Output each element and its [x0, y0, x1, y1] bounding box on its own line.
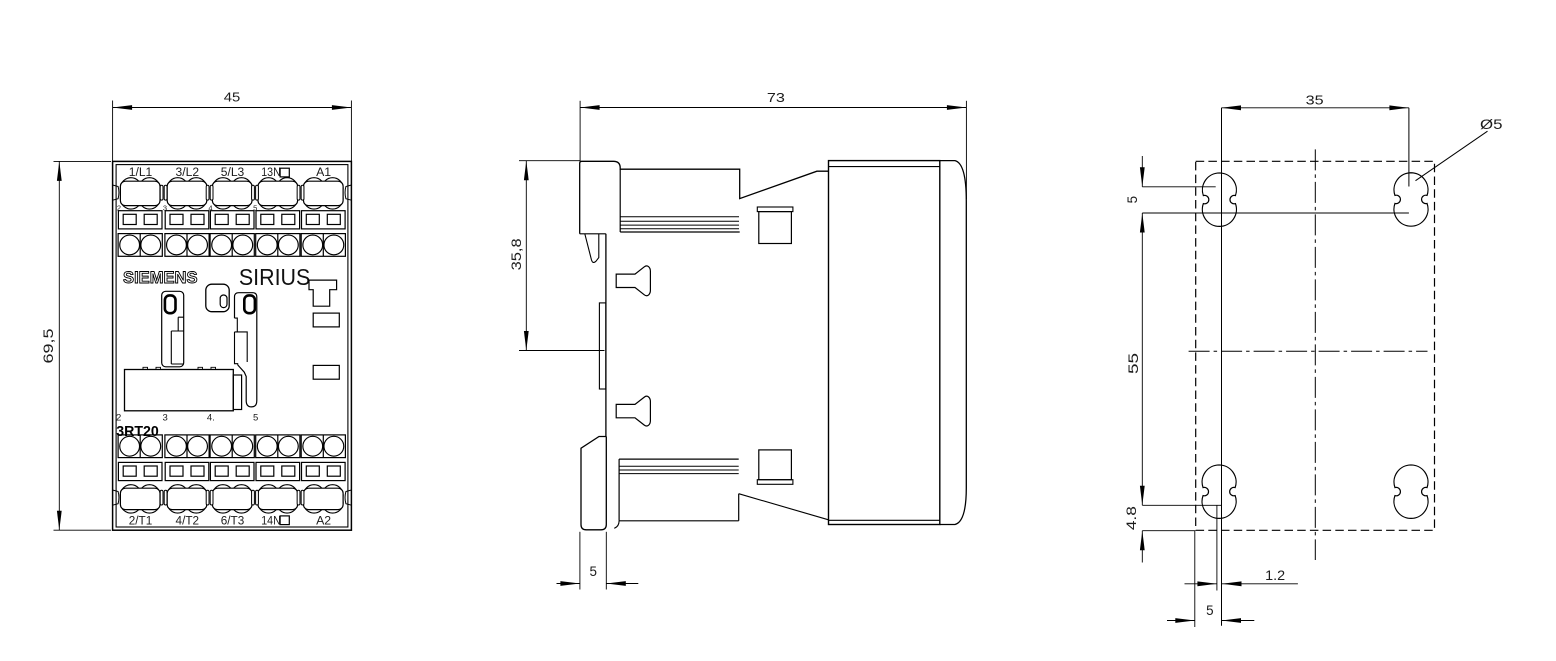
- svg-text:Ø5: Ø5: [1480, 117, 1503, 133]
- svg-text:6/T3: 6/T3: [221, 513, 245, 527]
- svg-text:13N: 13N: [261, 165, 281, 179]
- svg-text:2: 2: [117, 203, 121, 212]
- svg-text:5: 5: [589, 564, 596, 579]
- svg-text:4.8: 4.8: [1124, 506, 1139, 530]
- svg-text:35,8: 35,8: [509, 238, 524, 270]
- svg-text:55: 55: [1126, 353, 1141, 374]
- svg-text:5: 5: [1125, 196, 1140, 203]
- svg-text:A1: A1: [316, 165, 331, 179]
- svg-text:SIEMENS: SIEMENS: [123, 269, 198, 287]
- svg-text:5: 5: [253, 203, 257, 212]
- svg-text:5: 5: [253, 413, 258, 424]
- svg-text:2: 2: [116, 413, 121, 424]
- svg-text:SIRIUS: SIRIUS: [239, 264, 311, 290]
- svg-text:A2: A2: [316, 513, 331, 527]
- svg-text:3: 3: [163, 413, 168, 424]
- svg-text:3: 3: [163, 203, 167, 212]
- svg-text:2/T1: 2/T1: [129, 513, 153, 527]
- svg-text:3RT20: 3RT20: [116, 423, 159, 440]
- svg-text:35: 35: [1306, 93, 1324, 108]
- svg-text:5/L3: 5/L3: [221, 165, 245, 179]
- svg-text:1.2: 1.2: [1265, 568, 1285, 583]
- svg-text:69,5: 69,5: [41, 329, 56, 364]
- svg-text:4.: 4.: [207, 413, 215, 424]
- svg-text:73: 73: [767, 90, 785, 105]
- svg-text:1/L1: 1/L1: [129, 165, 153, 179]
- svg-text:4/T2: 4/T2: [176, 513, 200, 527]
- svg-text:45: 45: [224, 90, 241, 105]
- svg-text:5: 5: [1206, 603, 1213, 618]
- svg-text:3/L2: 3/L2: [176, 165, 200, 179]
- svg-text:14N: 14N: [261, 513, 281, 527]
- svg-text:4: 4: [208, 203, 212, 212]
